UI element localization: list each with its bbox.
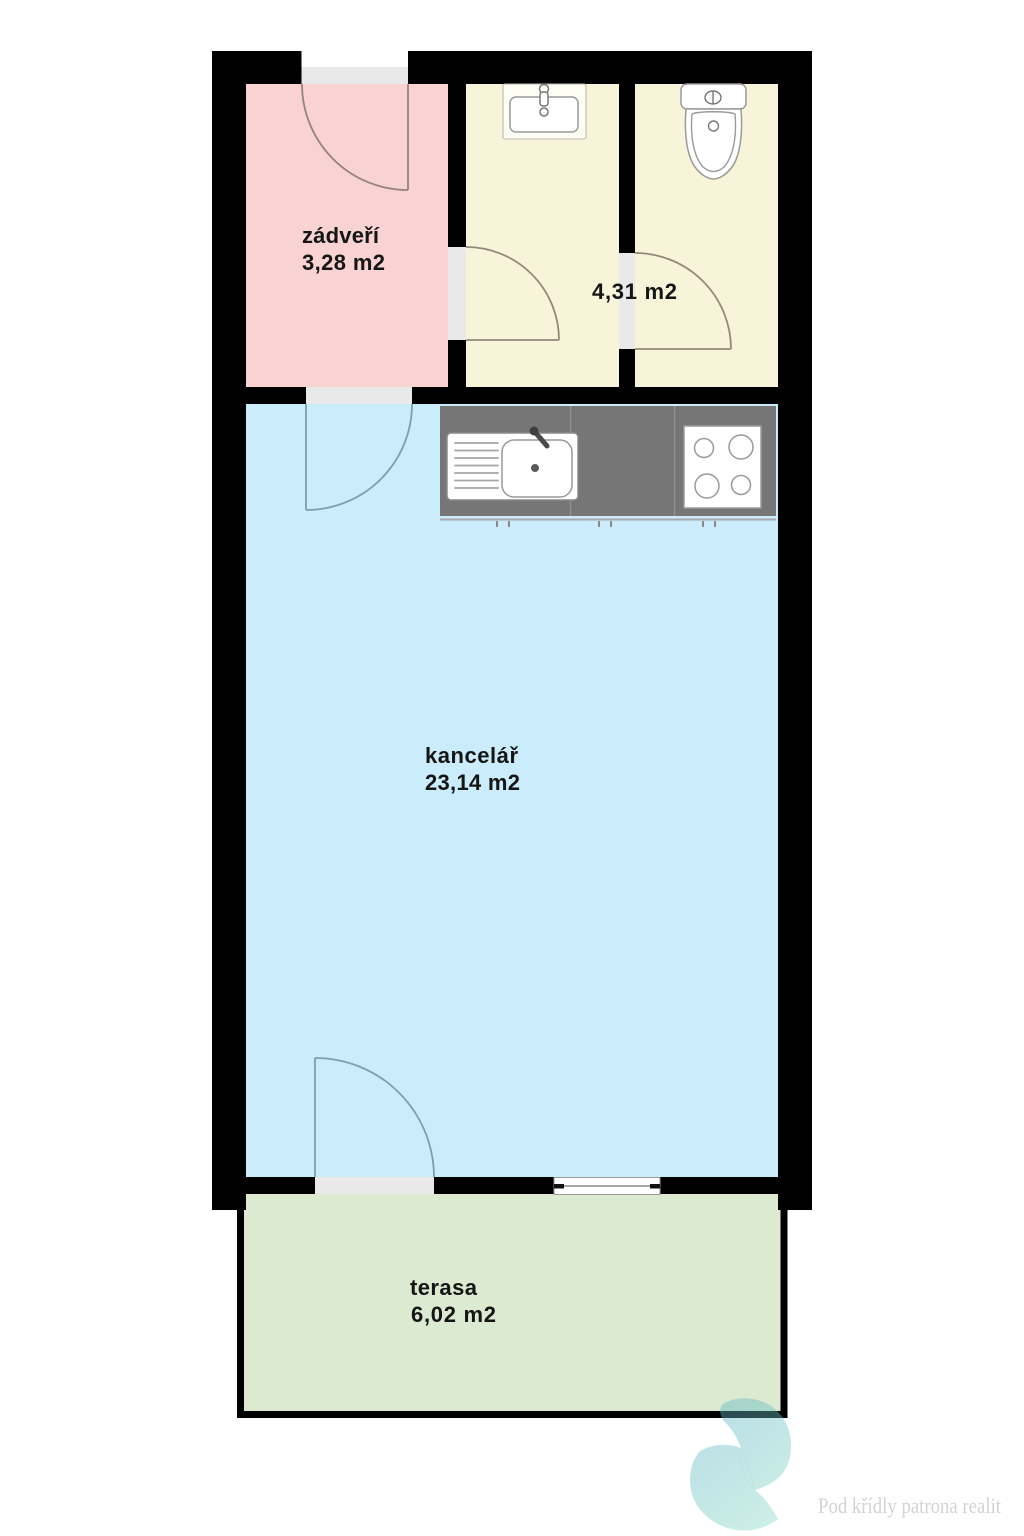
svg-text:Pod křídly patrona realit: Pod křídly patrona realit: [818, 1493, 1001, 1518]
svg-text:kancelář: kancelář: [425, 743, 518, 768]
svg-text:zádveří: zádveří: [302, 223, 380, 248]
svg-text:3,28 m2: 3,28 m2: [302, 250, 385, 275]
svg-text:6,02 m2: 6,02 m2: [411, 1302, 496, 1327]
svg-text:terasa: terasa: [410, 1275, 478, 1300]
svg-text:4,31 m2: 4,31 m2: [592, 279, 677, 304]
svg-text:23,14 m2: 23,14 m2: [425, 770, 520, 795]
